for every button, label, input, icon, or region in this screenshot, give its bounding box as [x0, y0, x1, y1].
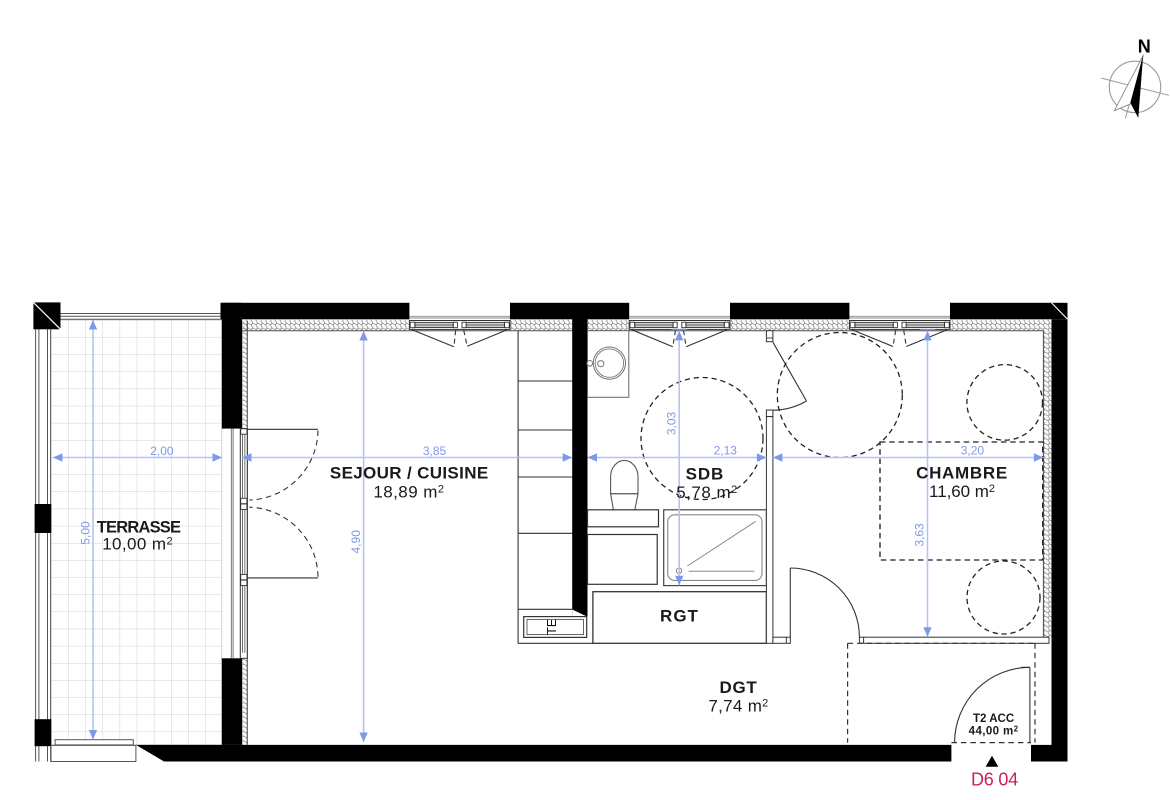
svg-text:SDB: SDB	[686, 464, 725, 483]
svg-text:2,13: 2,13	[714, 444, 738, 458]
svg-text:N: N	[1138, 36, 1151, 56]
svg-text:T2 ACC: T2 ACC	[973, 713, 1014, 725]
svg-text:2,00: 2,00	[150, 444, 174, 458]
svg-text:DGT: DGT	[720, 678, 758, 697]
svg-text:44,00 m2: 44,00 m2	[969, 724, 1019, 737]
svg-text:18,89 m2: 18,89 m2	[373, 482, 444, 501]
svg-text:3,85: 3,85	[423, 444, 447, 458]
svg-text:7,74 m2: 7,74 m2	[708, 696, 768, 715]
svg-text:3,63: 3,63	[913, 523, 927, 547]
svg-text:SEJOUR / CUISINE: SEJOUR / CUISINE	[330, 463, 489, 482]
svg-text:4,90: 4,90	[349, 530, 363, 554]
svg-text:11,60 m2: 11,60 m2	[929, 482, 995, 501]
svg-text:3,03: 3,03	[664, 411, 678, 435]
svg-text:10,00 m2: 10,00 m2	[102, 535, 173, 554]
svg-text:3,20: 3,20	[961, 444, 985, 458]
svg-text:RGT: RGT	[660, 607, 699, 626]
svg-text:TE: TE	[545, 619, 559, 635]
svg-text:5,78 m2: 5,78 m2	[676, 483, 738, 502]
svg-text:D6 04: D6 04	[971, 770, 1018, 790]
svg-text:5,00: 5,00	[79, 521, 93, 545]
svg-text:CHAMBRE: CHAMBRE	[916, 464, 1008, 483]
